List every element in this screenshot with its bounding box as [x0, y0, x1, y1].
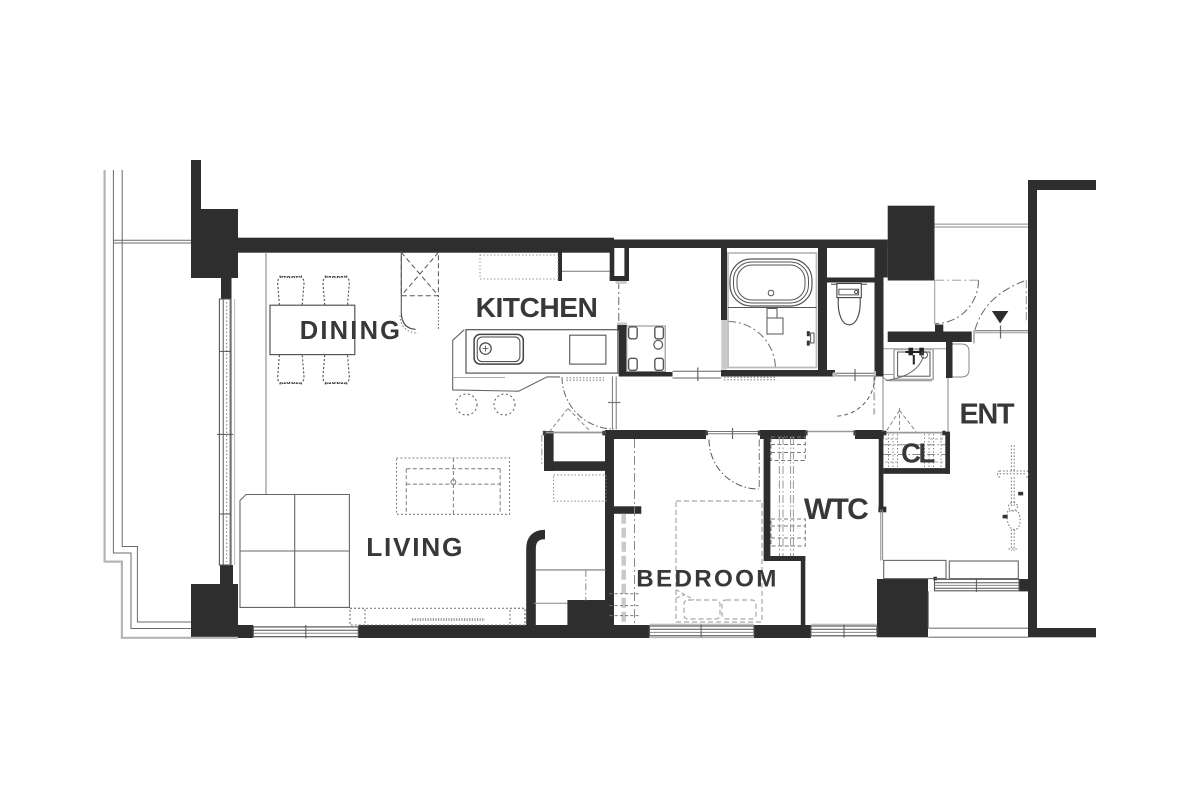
svg-text:LIVING: LIVING — [366, 532, 464, 562]
svg-text:WTC: WTC — [804, 493, 868, 526]
svg-text:CL: CL — [901, 438, 934, 469]
svg-text:ENT: ENT — [960, 399, 1015, 431]
svg-text:BEDROOM: BEDROOM — [636, 566, 778, 593]
svg-text:KITCHEN: KITCHEN — [476, 291, 598, 323]
svg-text:DINING: DINING — [300, 317, 402, 345]
